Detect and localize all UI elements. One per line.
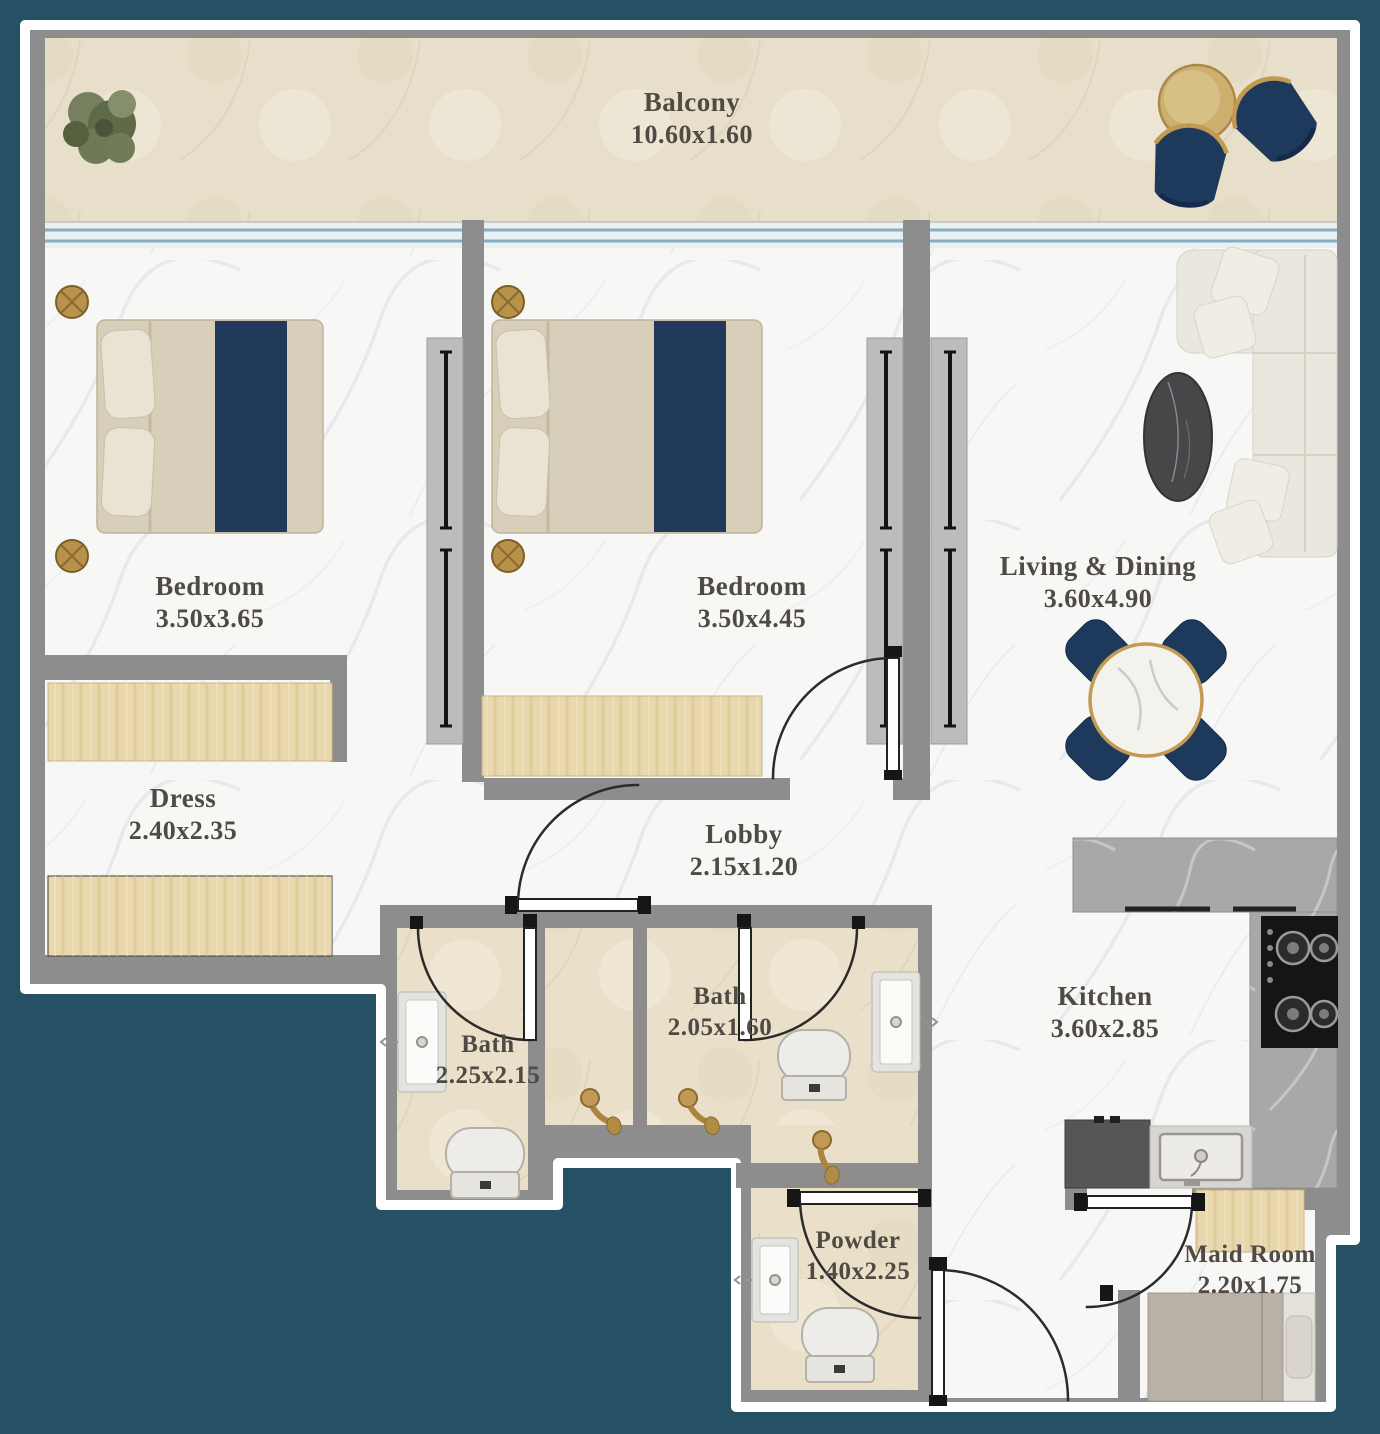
room-dims: 2.40x2.35 — [129, 815, 238, 847]
dining-table-icon — [1090, 644, 1202, 756]
room-label-dress: Dress 2.40x2.35 — [129, 782, 238, 847]
floor-plan-page: Balcony 10.60x1.60 Bedroom 3.50x3.65 Bed… — [0, 0, 1380, 1434]
room-label-bath-1: Bath 2.25x2.15 — [436, 1030, 541, 1091]
floor-plan-canvas — [0, 0, 1380, 1434]
room-dims: 2.05x1.60 — [668, 1013, 773, 1044]
room-name: Bedroom — [155, 570, 265, 603]
room-label-living-dining: Living & Dining 3.60x4.90 — [1000, 550, 1197, 615]
wall-bath-top — [857, 905, 930, 928]
wall-bedroom2-bottom — [484, 778, 790, 800]
room-name: Lobby — [690, 818, 799, 851]
room-dims: 2.15x1.20 — [690, 851, 799, 883]
wall — [633, 928, 647, 1125]
bed-icon — [492, 320, 762, 533]
glass-wall — [45, 222, 1337, 248]
sink-icon — [1150, 1126, 1252, 1188]
room-label-maid-room: Maid Room 2.20x1.75 — [1184, 1240, 1316, 1301]
room-label-lobby: Lobby 2.15x1.20 — [690, 818, 799, 883]
room-name: Living & Dining — [1000, 550, 1197, 583]
room-dims: 3.60x4.90 — [1000, 583, 1197, 615]
bed-icon — [1148, 1293, 1315, 1401]
room-name: Bath — [436, 1030, 541, 1061]
bed-runner — [215, 321, 287, 532]
wall-bedrooms-divider — [462, 248, 484, 782]
room-label-kitchen: Kitchen 3.60x2.85 — [1051, 980, 1160, 1045]
refrigerator-icon — [1065, 1116, 1150, 1188]
nightstand-icon — [56, 540, 88, 572]
wardrobe-icon — [931, 338, 967, 744]
room-dims: 3.50x4.45 — [697, 603, 807, 635]
toilet-icon — [802, 1308, 878, 1382]
wardrobe-icon — [48, 683, 332, 761]
wardrobe-icon — [48, 876, 332, 956]
room-dims: 3.50x3.65 — [155, 603, 265, 635]
room-label-powder: Powder 1.40x2.25 — [806, 1226, 911, 1287]
room-name: Powder — [806, 1226, 911, 1257]
room-name: Dress — [129, 782, 238, 815]
dresser-icon — [482, 696, 762, 776]
stove-icon — [1261, 916, 1338, 1048]
room-label-bath-2: Bath 2.05x1.60 — [668, 982, 773, 1043]
room-name: Maid Room — [1184, 1240, 1316, 1271]
room-dims: 2.20x1.75 — [1184, 1271, 1316, 1302]
nightstand-icon — [492, 540, 524, 572]
room-dims: 3.60x2.85 — [1051, 1013, 1160, 1045]
room-name: Kitchen — [1051, 980, 1160, 1013]
bed-icon — [97, 320, 323, 533]
room-name: Bedroom — [697, 570, 807, 603]
room-name: Bath — [668, 982, 773, 1013]
toilet-icon — [446, 1128, 524, 1198]
wall — [330, 680, 347, 762]
wall-maid-left — [1118, 1290, 1140, 1398]
toilet-icon — [778, 1030, 850, 1100]
room-label-balcony: Balcony 10.60x1.60 — [631, 86, 753, 151]
wardrobe-icon — [427, 338, 463, 744]
pillow-icon — [1286, 1316, 1312, 1378]
wall-bedroom-living — [903, 248, 930, 800]
nightstand-icon — [492, 286, 524, 318]
wall — [462, 220, 484, 250]
room-dims: 2.25x2.15 — [436, 1061, 541, 1092]
room-dims: 1.40x2.25 — [806, 1257, 911, 1288]
bed-runner — [654, 321, 726, 532]
room-label-bedroom-1: Bedroom 3.50x3.65 — [155, 570, 265, 635]
wall-dress-top — [45, 655, 347, 680]
nightstand-icon — [56, 286, 88, 318]
room-name: Balcony — [631, 86, 753, 119]
room-label-bedroom-2: Bedroom 3.50x4.45 — [697, 570, 807, 635]
wall — [903, 220, 930, 250]
coffee-table-icon — [1144, 373, 1212, 501]
wall — [893, 778, 905, 800]
room-dims: 10.60x1.60 — [631, 119, 753, 151]
